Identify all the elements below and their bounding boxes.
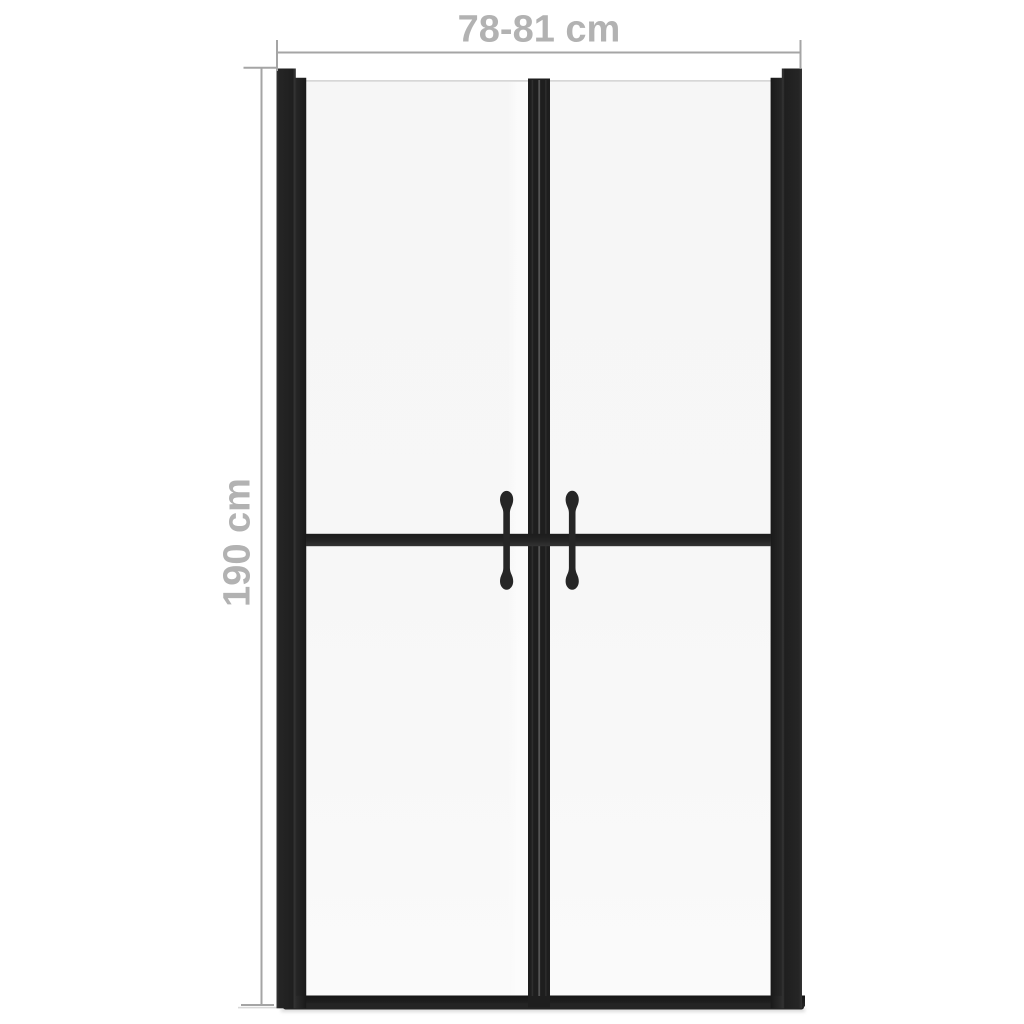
- svg-text:78-81 cm: 78-81 cm: [458, 9, 621, 51]
- svg-text:190 cm: 190 cm: [217, 478, 259, 607]
